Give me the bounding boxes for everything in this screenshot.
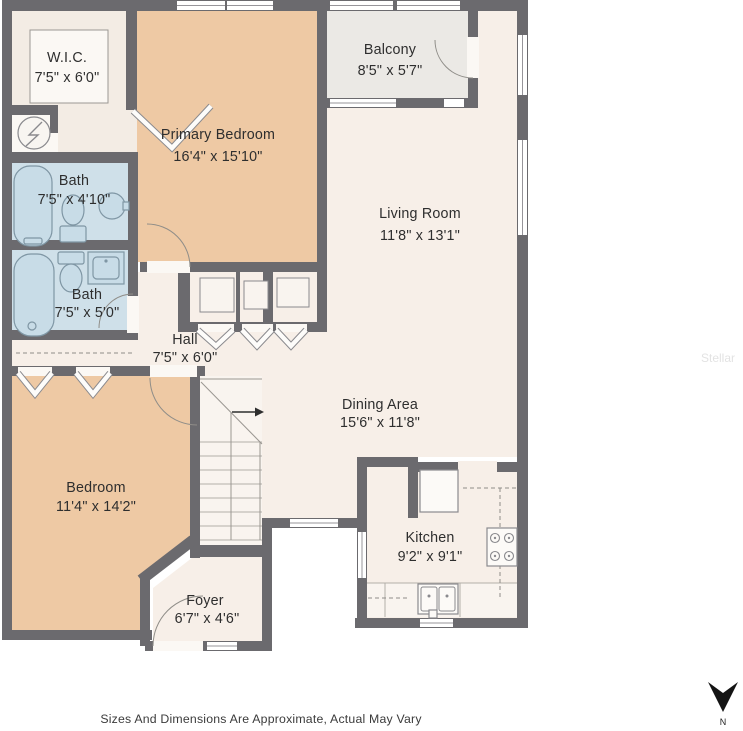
disclaimer-text: Sizes And Dimensions Are Approximate, Ac… <box>100 712 422 726</box>
wall-segment <box>50 115 58 133</box>
faucet-dot-icon <box>104 259 107 262</box>
compass-label: N <box>720 717 727 727</box>
wall-segment <box>140 576 150 646</box>
wic-entry-area <box>58 105 137 152</box>
toilet-tank-icon <box>60 226 86 242</box>
wall-segment <box>2 630 152 640</box>
room-dims: 11'4" x 14'2" <box>56 499 136 515</box>
wall-segment <box>357 457 418 467</box>
watermark: Stellar <box>701 351 735 365</box>
room-dims: 16'4" x 15'10" <box>173 149 262 165</box>
tub-faucet-icon <box>24 238 42 244</box>
room-dims: 9'2" x 9'1" <box>398 549 463 565</box>
sink-faucet-icon <box>123 202 129 210</box>
kitchen-sink-icon <box>418 584 458 614</box>
room-name: Living Room <box>379 206 461 222</box>
door-opening <box>150 365 197 377</box>
closet-unit <box>200 278 234 312</box>
wall-segment <box>317 0 327 332</box>
toilet-tank-icon <box>58 252 84 264</box>
wall-segment <box>2 0 12 640</box>
water-heater-icon <box>18 117 50 149</box>
window <box>444 99 464 107</box>
room-dims: 7'5" x 6'0" <box>35 70 100 86</box>
room-dims: 8'5" x 5'7" <box>358 63 423 79</box>
burner-dot <box>494 537 496 539</box>
burner-dot <box>508 555 510 557</box>
wall-segment <box>126 0 137 110</box>
room-name: Primary Bedroom <box>161 127 275 143</box>
room-dims: 6'7" x 4'6" <box>175 611 240 627</box>
closet-unit <box>277 278 309 307</box>
kitchen-opening <box>458 461 497 473</box>
room-name: Foyer <box>186 593 224 609</box>
room-living-strip <box>478 8 517 108</box>
burner-dot <box>508 537 510 539</box>
door-opening <box>127 296 139 333</box>
room-name: Bath <box>72 287 102 303</box>
wall-segment <box>190 545 266 557</box>
drain-dot <box>428 595 431 598</box>
room-dims: 7'5" x 6'0" <box>153 350 218 366</box>
room-name: Hall <box>172 332 197 348</box>
stove-icon <box>487 528 517 566</box>
room-name: Bedroom <box>66 480 125 496</box>
wall-segment <box>262 518 272 651</box>
closet-unit <box>244 281 268 309</box>
burner-dot <box>494 555 496 557</box>
wall-segment <box>2 152 138 163</box>
drain-dot <box>446 595 449 598</box>
room-name: W.I.C. <box>47 50 87 66</box>
entry-door-opening <box>153 641 203 651</box>
compass: N <box>708 682 738 727</box>
wall-segment <box>236 272 240 322</box>
wall-segment <box>408 467 418 518</box>
wall-segment <box>178 272 190 326</box>
wic-inner-area <box>30 30 108 103</box>
room-dims: 11'8" x 13'1" <box>380 228 460 244</box>
tub-drain-icon <box>28 322 36 330</box>
room-dims: 7'5" x 5'0" <box>55 305 120 321</box>
room-dims: 15'6" x 11'8" <box>340 415 420 431</box>
door-opening <box>147 261 190 273</box>
room-name: Bath <box>59 173 89 189</box>
room-name: Balcony <box>364 42 417 58</box>
balcony-door-opening <box>467 37 479 78</box>
floor-plan: W.I.C. 7'5" x 6'0" Primary Bedroom 16'4"… <box>0 0 743 731</box>
wall-segment <box>2 105 58 115</box>
refrigerator-icon <box>420 470 458 512</box>
floor-plan-canvas: W.I.C. 7'5" x 6'0" Primary Bedroom 16'4"… <box>0 0 743 731</box>
room-name: Dining Area <box>342 397 418 413</box>
north-arrow-icon <box>708 682 738 712</box>
wall-segment <box>497 462 517 472</box>
wall-segment <box>190 366 200 558</box>
water-heater <box>18 117 50 149</box>
sink-faucet-icon <box>429 610 437 618</box>
room-dims: 7'5" x 4'10" <box>38 192 111 208</box>
room-name: Kitchen <box>405 530 454 546</box>
